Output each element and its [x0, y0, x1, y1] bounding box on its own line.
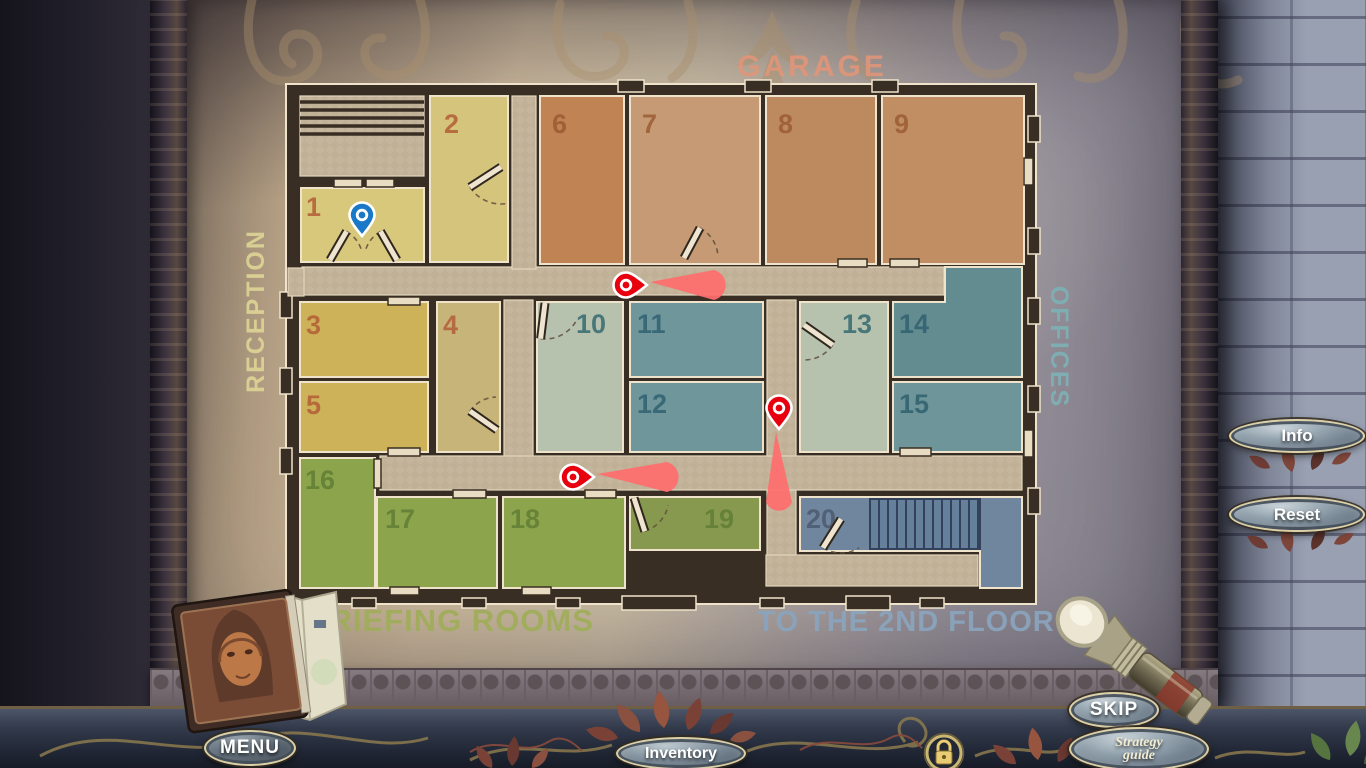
dried-leaves-lock — [989, 726, 1077, 768]
reset-button[interactable]: Reset — [1229, 497, 1365, 532]
inventory-label: Inventory — [645, 745, 717, 763]
menu-label: MENU — [220, 737, 280, 759]
ivy-leaves — [1306, 719, 1366, 768]
strategy-guide-line2: guide — [1123, 749, 1155, 762]
skip-label: SKIP — [1090, 699, 1138, 721]
decor-layer — [0, 0, 1366, 768]
reset-label: Reset — [1274, 505, 1320, 525]
journal-cover — [172, 589, 312, 733]
info-button[interactable]: Info — [1229, 419, 1365, 453]
skip-button[interactable]: SKIP — [1069, 692, 1159, 728]
lock-icon[interactable] — [925, 734, 964, 768]
strategy-guide-line1: Strategy — [1115, 736, 1162, 749]
inventory-button[interactable]: Inventory — [616, 737, 746, 768]
menu-button[interactable]: MENU — [204, 730, 296, 766]
strategy-guide-button[interactable]: Strategy guide — [1069, 727, 1209, 768]
journal-button[interactable] — [172, 589, 346, 733]
dried-leaves-left — [472, 736, 552, 768]
info-label: Info — [1281, 426, 1312, 446]
game-screen: 1234567891011121314151617181920GARAGEREC… — [0, 0, 1366, 768]
